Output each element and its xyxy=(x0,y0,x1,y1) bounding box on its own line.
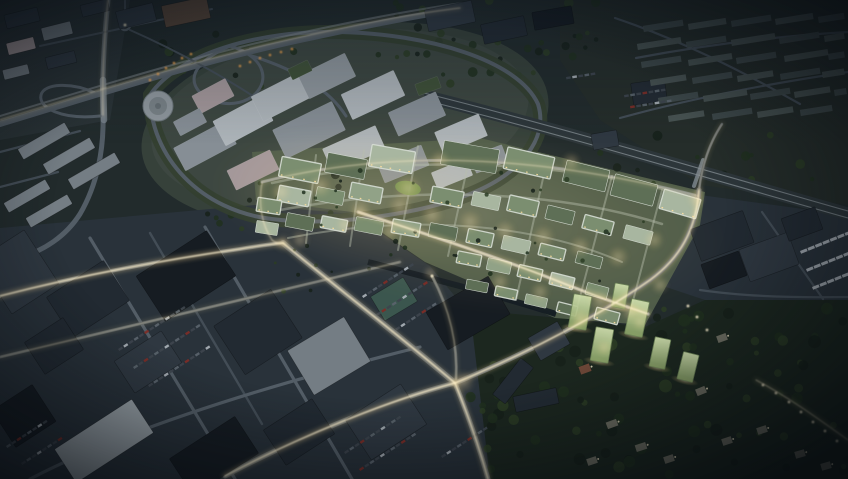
aerial-dusk-rendering xyxy=(0,0,848,479)
screenshot-canvas xyxy=(0,0,848,479)
vignette xyxy=(0,0,848,479)
